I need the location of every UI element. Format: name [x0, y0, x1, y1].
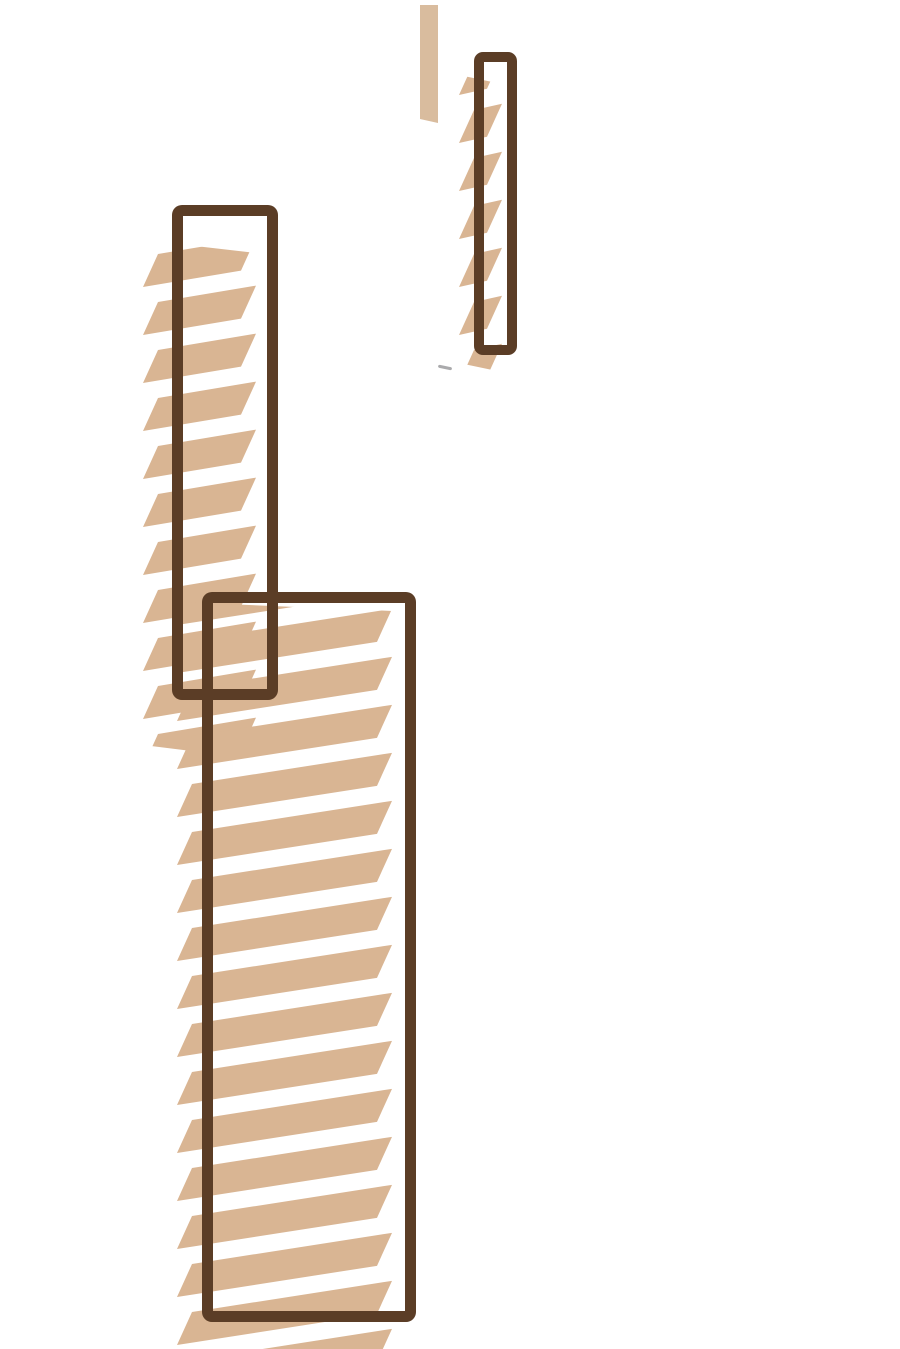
abstract-hatched-bars-graphic	[0, 0, 900, 1349]
pen-mark	[438, 365, 452, 371]
outline-rect-bottom	[202, 592, 416, 1322]
outline-rect-top-right	[474, 52, 517, 355]
solid-bar-top-center	[420, 5, 438, 123]
